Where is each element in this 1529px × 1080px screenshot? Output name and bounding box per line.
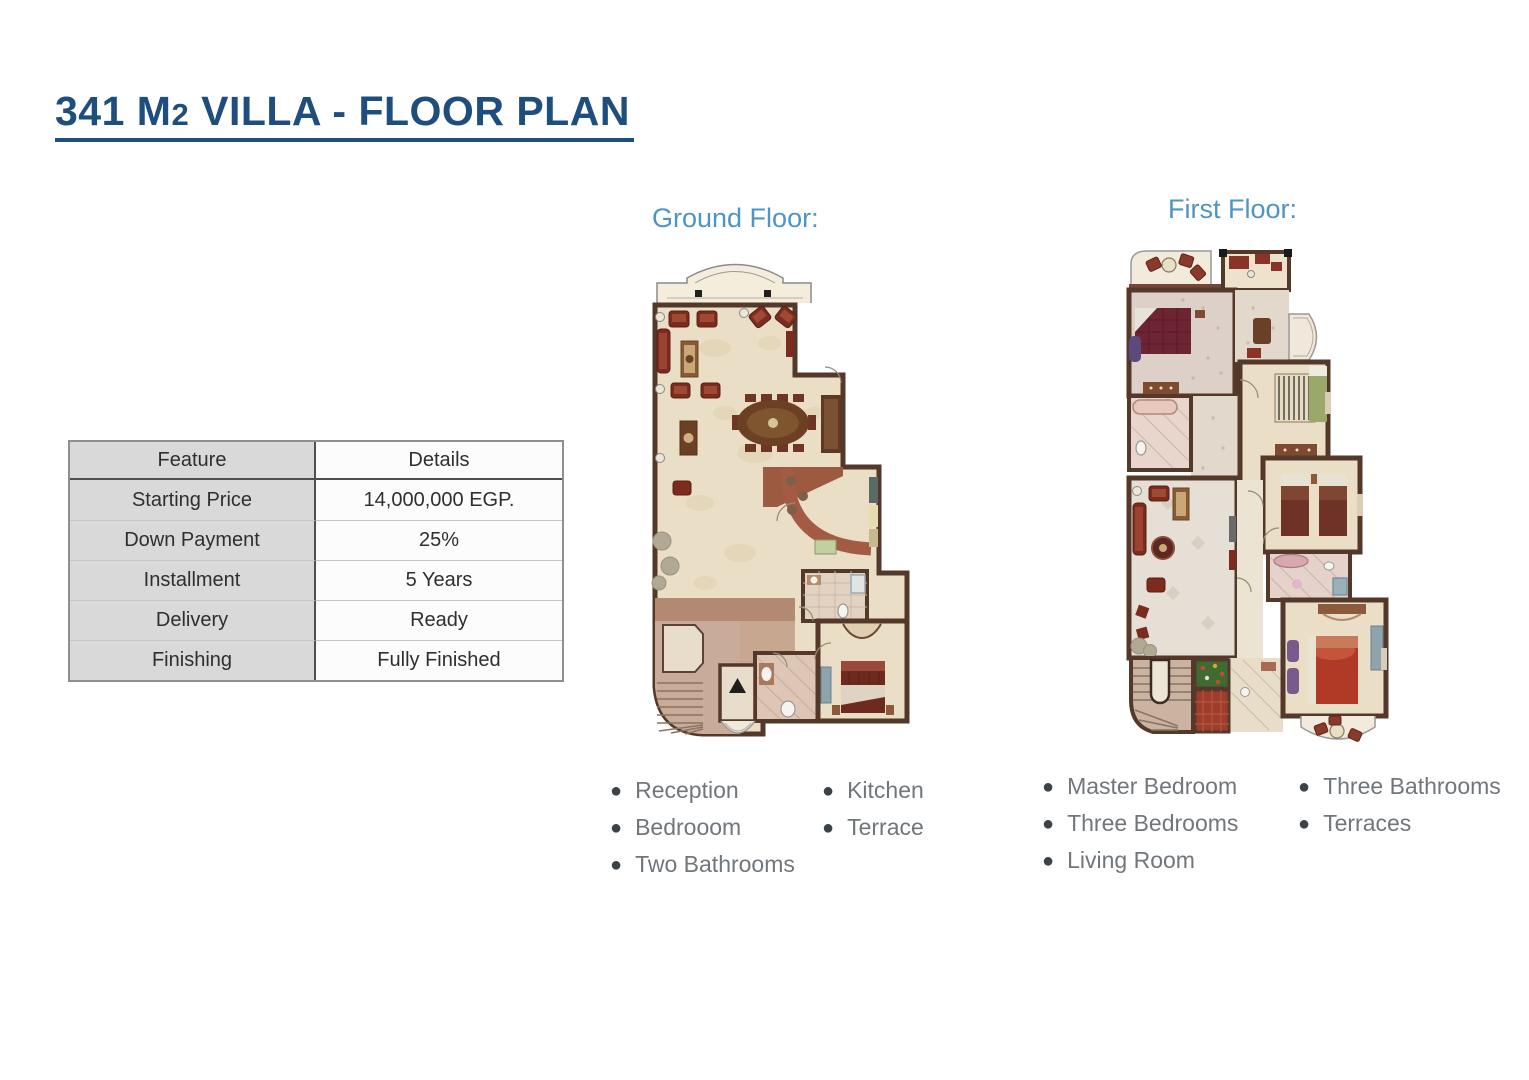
terrace-top bbox=[1129, 251, 1225, 292]
feature-label: Three Bedrooms bbox=[1067, 810, 1238, 837]
title-part2: 2 bbox=[171, 97, 189, 132]
feature-label: Terrace bbox=[847, 814, 924, 841]
table-row-feature: Starting Price bbox=[70, 480, 316, 520]
ground-floor-features: ●Reception ●Bedrooom ●Two Bathrooms bbox=[610, 772, 795, 883]
hallway-floor bbox=[655, 598, 795, 621]
feature-label: Terraces bbox=[1323, 810, 1411, 837]
list-item: ●Three Bedrooms bbox=[1042, 805, 1238, 842]
first-floor-label: First Floor: bbox=[1168, 194, 1297, 225]
bullet-dot: ● bbox=[822, 781, 834, 801]
page: 341 M2 VILLA - FLOOR PLAN Feature Detail… bbox=[0, 0, 1529, 1080]
bullet-dot: ● bbox=[1042, 851, 1054, 871]
entry-porch-top bbox=[657, 265, 811, 304]
bedroom bbox=[818, 621, 907, 721]
table-row-details: Ready bbox=[316, 600, 562, 640]
terrace-bottom bbox=[1301, 716, 1375, 742]
page-title: 341 M2 VILLA - FLOOR PLAN bbox=[55, 88, 634, 142]
table-row-feature: Down Payment bbox=[70, 520, 316, 560]
corridor-bottom bbox=[1229, 658, 1283, 732]
table-row-details: 14,000,000 EGP. bbox=[316, 480, 562, 520]
red-tile-floor bbox=[1195, 690, 1229, 732]
corridor bbox=[1237, 480, 1263, 658]
bedroom-3 bbox=[1263, 458, 1363, 552]
ground-floor-features-2: ●Kitchen ●Terrace bbox=[822, 772, 924, 846]
title-part3: VILLA - FLOOR PLAN bbox=[189, 88, 630, 134]
list-item: ●Bedrooom bbox=[610, 809, 795, 846]
ground-floor-label: Ground Floor: bbox=[652, 203, 819, 234]
table-header-feature: Feature bbox=[70, 442, 316, 480]
bullet-dot: ● bbox=[1298, 777, 1310, 797]
feature-label: Reception bbox=[635, 777, 739, 804]
list-item: ●Reception bbox=[610, 772, 795, 809]
bullet-dot: ● bbox=[1298, 814, 1310, 834]
bathroom-2 bbox=[1268, 552, 1350, 600]
planter-mosaic bbox=[1195, 660, 1229, 688]
first-floor-features: ●Master Bedroom ●Three Bedrooms ●Living … bbox=[1042, 768, 1238, 879]
list-item: ●Three Bathrooms bbox=[1298, 768, 1501, 805]
table-header-details: Details bbox=[316, 442, 562, 480]
title-part1: 341 M bbox=[55, 88, 171, 134]
feature-label: Living Room bbox=[1067, 847, 1195, 874]
bathroom-1 bbox=[803, 571, 867, 621]
bullet-dot: ● bbox=[610, 818, 622, 838]
table-row-feature: Delivery bbox=[70, 600, 316, 640]
balcony-arch bbox=[1289, 314, 1317, 360]
bullet-dot: ● bbox=[822, 818, 834, 838]
table-row-feature: Finishing bbox=[70, 640, 316, 680]
feature-label: Three Bathrooms bbox=[1323, 773, 1501, 800]
living-room bbox=[1129, 478, 1237, 658]
list-item: ●Two Bathrooms bbox=[610, 846, 795, 883]
spec-table: Feature Details Starting Price 14,000,00… bbox=[68, 440, 564, 682]
entry-porch-bottom bbox=[720, 665, 755, 733]
bathroom-1 bbox=[1129, 396, 1191, 470]
table-row-feature: Installment bbox=[70, 560, 316, 600]
bedroom-4 bbox=[1283, 600, 1387, 716]
list-item: ●Master Bedroom bbox=[1042, 768, 1238, 805]
terrace-top-right bbox=[1219, 249, 1292, 290]
first-floor-plan bbox=[1123, 248, 1405, 752]
list-item: ●Terraces bbox=[1298, 805, 1501, 842]
bullet-dot: ● bbox=[610, 781, 622, 801]
feature-label: Master Bedroom bbox=[1067, 773, 1237, 800]
table-row-details: Fully Finished bbox=[316, 640, 562, 680]
feature-label: Two Bathrooms bbox=[635, 851, 795, 878]
list-item: ●Living Room bbox=[1042, 842, 1238, 879]
table-row-details: 25% bbox=[316, 520, 562, 560]
ground-floor-plan bbox=[645, 253, 940, 748]
bullet-dot: ● bbox=[1042, 814, 1054, 834]
first-floor-features-2: ●Three Bathrooms ●Terraces bbox=[1298, 768, 1501, 842]
staircase bbox=[1131, 658, 1193, 732]
list-item: ●Terrace bbox=[822, 809, 924, 846]
feature-label: Bedrooom bbox=[635, 814, 741, 841]
bullet-dot: ● bbox=[1042, 777, 1054, 797]
master-bedroom bbox=[1129, 290, 1235, 396]
feature-label: Kitchen bbox=[847, 777, 924, 804]
list-item: ●Kitchen bbox=[822, 772, 924, 809]
table-row-details: 5 Years bbox=[316, 560, 562, 600]
bullet-dot: ● bbox=[610, 855, 622, 875]
